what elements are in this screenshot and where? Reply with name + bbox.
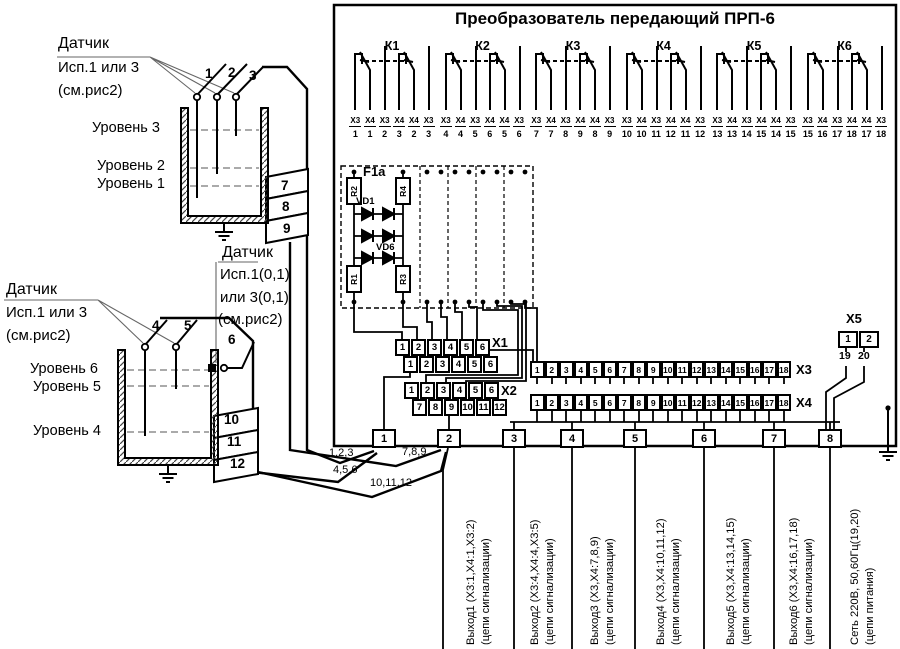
pin-cell: 6 [603, 361, 618, 378]
connector-x1-row2: 123456 [403, 356, 498, 373]
pin-cell: 9 [646, 394, 661, 411]
wall-node [208, 364, 216, 372]
relay-name: К4 [620, 39, 708, 53]
output-label-column: Выход5 (Х3,Х4:13,14,15) (цепи сигнализац… [706, 453, 772, 645]
level-6-label: Уровень 6 [30, 361, 98, 377]
pin-cell: 6 [603, 394, 618, 411]
pin-cell: 2 [859, 331, 879, 348]
wire-11-label: 11 [227, 434, 241, 449]
pin-cell: 11 [675, 361, 690, 378]
connector-x2-row1: 123456 [404, 382, 499, 399]
pin-cell: 6 [483, 356, 498, 373]
pin-cell: 1 [404, 382, 419, 399]
pin-cell: 4 [574, 361, 589, 378]
pin-cell: 8 [632, 361, 647, 378]
sensor-note-ref: (см.рис2) [218, 312, 283, 329]
pin-cell: 5 [468, 382, 483, 399]
output-name: Выход4 (Х3,Х4:10,11,12) [654, 518, 669, 645]
pin-cell: 15 [733, 361, 748, 378]
output-circuit-type: (цепи сигнализации) [739, 538, 754, 645]
cable-label-789: 7,8,9 [402, 446, 426, 458]
wire-9-label: 9 [283, 221, 291, 236]
relay-name: К1 [348, 39, 436, 53]
pin-cell: 2 [420, 382, 435, 399]
tank-bottom [118, 350, 218, 465]
fblock-label: F1a [363, 165, 385, 180]
connector-x5-label: Х5 [846, 312, 862, 327]
output-label-column: Выход2 (Х3:4,Х4:4,Х3:5) (цепи сигнализац… [516, 453, 570, 645]
connector-x3-row: 123456789101112131415161718 [530, 361, 791, 378]
relay-terminal-labels: Х34 Х44 Х35 Х46 Х45 Х36 [439, 110, 527, 139]
level-4-label: Уровень 4 [33, 423, 101, 439]
pin-cell: 8 [428, 399, 443, 416]
sensor-bottom-ref: (см.рис2) [6, 328, 71, 345]
pin-cell: 12 [492, 399, 507, 416]
sensor-note-title: Датчик [222, 244, 273, 262]
pin-cell: 6 [475, 339, 490, 356]
pin-cell: 2 [411, 339, 426, 356]
pin-cell: 5 [588, 394, 603, 411]
pin-cell: 1 [395, 339, 410, 356]
output-label-column: Выход4 (Х3,Х4:10,11,12) (цепи сигнализац… [637, 453, 702, 645]
wire-6-label: 6 [228, 332, 236, 347]
pin-cell: 3 [559, 361, 574, 378]
connector-x5-row: 12 [838, 331, 879, 348]
output-label-column: Выход3 (Х3,Х4:7,8,9) (цепи сигнализации) [574, 453, 633, 645]
wire-10-label: 10 [224, 412, 239, 427]
diode-last-label: VD6 [376, 243, 394, 254]
pin-cell: 12 [690, 394, 705, 411]
sensor-bottom-variant: Исп.1 или 3 [6, 305, 87, 322]
cable-gland: 8 [818, 429, 842, 448]
cable-label-123: 1,2,3 [329, 447, 353, 459]
relay-contact-group: К4 Х310 Х410 Х311 Х412 Х411 Х312 [620, 34, 708, 139]
cable-label-101112: 10,11,12 [370, 477, 412, 489]
output-name: Выход1 (Х3:1,Х4:1,Х3:2) [464, 519, 479, 645]
connector-x4-row: 123456789101112131415161718 [530, 394, 791, 411]
output-label-column: Выход1 (Х3:1,Х4:1,Х3:2) (цепи сигнализац… [446, 453, 512, 645]
relay-name: К3 [529, 39, 617, 53]
cable-gland: 7 [762, 429, 786, 448]
output-circuit-type: (цепи сигнализации) [604, 538, 619, 645]
output-circuit-type: (цепи сигнализации) [479, 538, 494, 645]
output-name: Выход6 (Х3,Х4:16,17,18) [787, 518, 802, 645]
pin-cell: 8 [632, 394, 647, 411]
output-label-column: Выход6 (Х3,Х4:16,17,18) (цепи сигнализац… [776, 453, 828, 645]
output-circuit-type: (цепи сигнализации) [670, 538, 685, 645]
output-circuit-type: (цепи сигнализации) [802, 538, 817, 645]
cable-gland: 2 [437, 429, 461, 448]
wire-12-label: 12 [230, 456, 245, 471]
pin-cell: 4 [451, 356, 466, 373]
cable-gland: 6 [692, 429, 716, 448]
relay-contact-group: К3 Х37 Х47 Х38 Х49 Х48 Х39 [529, 34, 617, 139]
pin-cell: 5 [467, 356, 482, 373]
fblock [341, 166, 533, 308]
x5-wire-19: 19 [839, 351, 851, 363]
x5-wire-20: 20 [858, 351, 870, 363]
level-1-label: Уровень 1 [97, 176, 165, 192]
pin-cell: 13 [704, 394, 719, 411]
connector-x1-row1: 123456 [395, 339, 490, 356]
pin-cell: 2 [419, 356, 434, 373]
output-name: Сеть 220В, 50,60Гц(19,20) [848, 509, 863, 645]
pin-cell: 1 [530, 361, 545, 378]
resistor-r2: R2 [347, 178, 361, 204]
wire6-terminal [221, 365, 227, 371]
pin-cell: 17 [762, 394, 777, 411]
pin-cell: 11 [675, 394, 690, 411]
pin-cell: 7 [617, 361, 632, 378]
relay-terminal-labels: Х31 Х41 Х32 Х43 Х42 Х33 [348, 110, 436, 139]
relay-contact-group: К6 Х315 Х416 Х317 Х418 Х417 Х318 [801, 34, 889, 139]
relay-contact-group: К1 Х31 Х41 Х32 Х43 Х42 Х33 [348, 34, 436, 139]
module-terminals [352, 170, 528, 305]
sensor-note-variant2: или 3(0,1) [220, 290, 289, 307]
resistor-r3: R3 [396, 266, 410, 292]
output-label-column: Сеть 220В, 50,60Гц(19,20) (цепи питания) [832, 453, 894, 645]
level-2-label: Уровень 2 [97, 158, 165, 174]
schematic-page: Преобразователь передающий ПРП-6 [0, 0, 900, 649]
resistor-r4: R4 [396, 178, 410, 204]
pin-cell: 18 [777, 394, 792, 411]
pin-cell: 3 [427, 339, 442, 356]
electrode-2-label: 2 [228, 65, 236, 80]
pin-cell: 5 [459, 339, 474, 356]
pin-cell: 10 [661, 361, 676, 378]
sensor-top-variant: Исп.1 или 3 [58, 60, 139, 77]
pin-cell: 4 [574, 394, 589, 411]
pin-cell: 13 [704, 361, 719, 378]
connector-x1-label: Х1 [492, 336, 508, 351]
pin-cell: 3 [435, 356, 450, 373]
cable-gland: 4 [560, 429, 584, 448]
pin-cell: 4 [452, 382, 467, 399]
pin-cell: 3 [559, 394, 574, 411]
pin-cell: 18 [777, 361, 792, 378]
pin-cell: 7 [412, 399, 427, 416]
page-title: Преобразователь передающий ПРП-6 [333, 9, 897, 29]
relay-contact-group: К2 Х34 Х44 Х35 Х46 Х45 Х36 [439, 34, 527, 139]
relay-terminal-labels: Х315 Х416 Х317 Х418 Х417 Х318 [801, 110, 889, 139]
cable-gland: 1 [372, 429, 396, 448]
pin-cell: 1 [838, 331, 858, 348]
relay-contacts-row: К1 Х31 Х41 Х32 Х43 Х42 Х33 [348, 34, 889, 139]
output-circuit-type: (цепи питания) [863, 568, 878, 645]
pin-cell: 11 [476, 399, 491, 416]
pin-cell: 10 [661, 394, 676, 411]
pin-cell: 6 [484, 382, 499, 399]
connector-x3-label: Х3 [796, 363, 812, 378]
pin-cell: 14 [719, 361, 734, 378]
pin-cell: 9 [646, 361, 661, 378]
pin-cell: 1 [403, 356, 418, 373]
pin-cell: 9 [444, 399, 459, 416]
sensor-top-title: Датчик [58, 35, 109, 53]
pin-cell: 2 [545, 361, 560, 378]
relay-contact-group: К5 Х313 Х413 Х314 Х415 Х414 Х315 [710, 34, 798, 139]
electrode-5-label: 5 [184, 318, 192, 333]
wire-8-label: 8 [282, 199, 290, 214]
pin-cell: 12 [690, 361, 705, 378]
pin-cell: 7 [617, 394, 632, 411]
pin-cell: 3 [436, 382, 451, 399]
cable-gland: 5 [623, 429, 647, 448]
sensor-note-variant1: Исп.1(0,1) [220, 267, 290, 284]
connector-x2-row2: 789101112 [412, 399, 507, 416]
relay-terminal-labels: Х313 Х413 Х314 Х415 Х414 Х315 [710, 110, 798, 139]
tank-top [181, 108, 268, 223]
pin-cell: 10 [460, 399, 475, 416]
enclosure-ground [879, 405, 897, 460]
relay-terminal-labels: Х310 Х410 Х311 Х412 Х411 Х312 [620, 110, 708, 139]
wire-7-label: 7 [281, 178, 289, 193]
output-name: Выход2 (Х3:4,Х4:4,Х3:5) [528, 519, 543, 645]
output-name: Выход5 (Х3,Х4:13,14,15) [724, 518, 739, 645]
cable-gland: 3 [502, 429, 526, 448]
pin-cell: 1 [530, 394, 545, 411]
relay-name: К2 [439, 39, 527, 53]
pin-cell: 2 [545, 394, 560, 411]
sensor-top-ref: (см.рис2) [58, 83, 123, 100]
pin-cell: 4 [443, 339, 458, 356]
electrode-1-label: 1 [205, 66, 213, 81]
connector-x4-label: Х4 [796, 396, 812, 411]
relay-name: К6 [801, 39, 889, 53]
output-name: Выход3 (Х3,Х4:7,8,9) [588, 536, 603, 645]
pin-cell: 15 [733, 394, 748, 411]
pin-cell: 16 [748, 361, 763, 378]
relay-terminal-labels: Х37 Х47 Х38 Х49 Х48 Х39 [529, 110, 617, 139]
output-circuit-type: (цепи сигнализации) [543, 538, 558, 645]
relay-name: К5 [710, 39, 798, 53]
electrode-4-label: 4 [152, 318, 160, 333]
pin-cell: 5 [588, 361, 603, 378]
level-3-label: Уровень 3 [92, 120, 160, 136]
pin-cell: 16 [748, 394, 763, 411]
electrode-3-label: 3 [249, 68, 257, 83]
connector-x2-label: Х2 [501, 384, 517, 399]
cable-label-456: 4,5,6 [333, 464, 357, 476]
sensor-bottom-title: Датчик [6, 281, 57, 299]
level-5-label: Уровень 5 [33, 379, 101, 395]
pin-cell: 17 [762, 361, 777, 378]
resistor-r1: R1 [347, 266, 361, 292]
pin-cell: 14 [719, 394, 734, 411]
